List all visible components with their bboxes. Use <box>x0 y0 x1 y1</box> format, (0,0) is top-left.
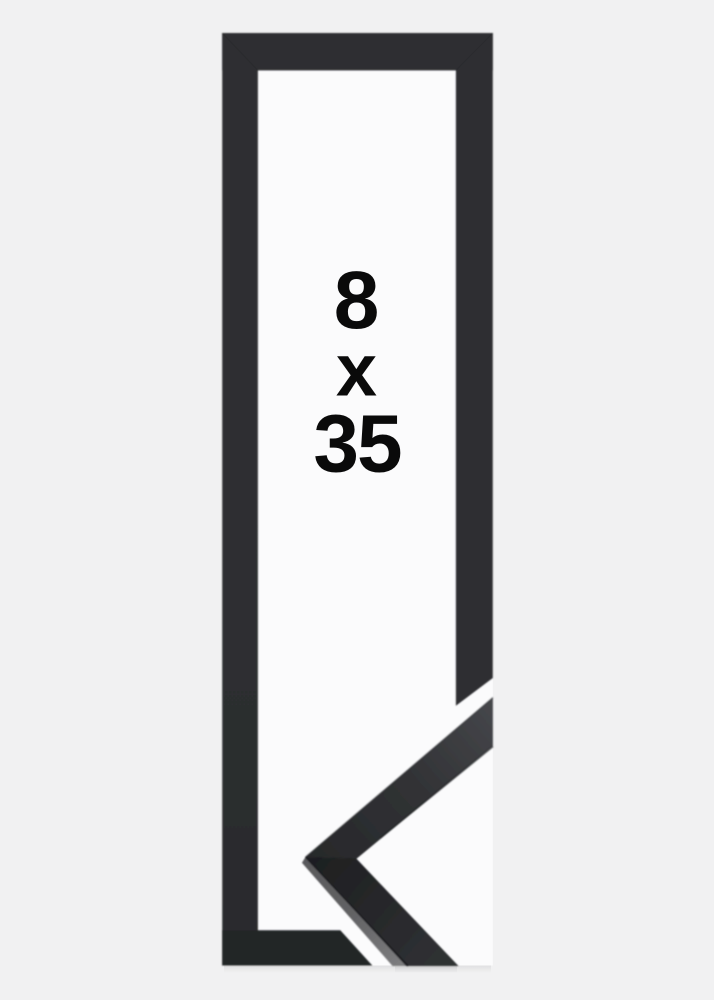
svg-text:35: 35 <box>313 399 401 490</box>
